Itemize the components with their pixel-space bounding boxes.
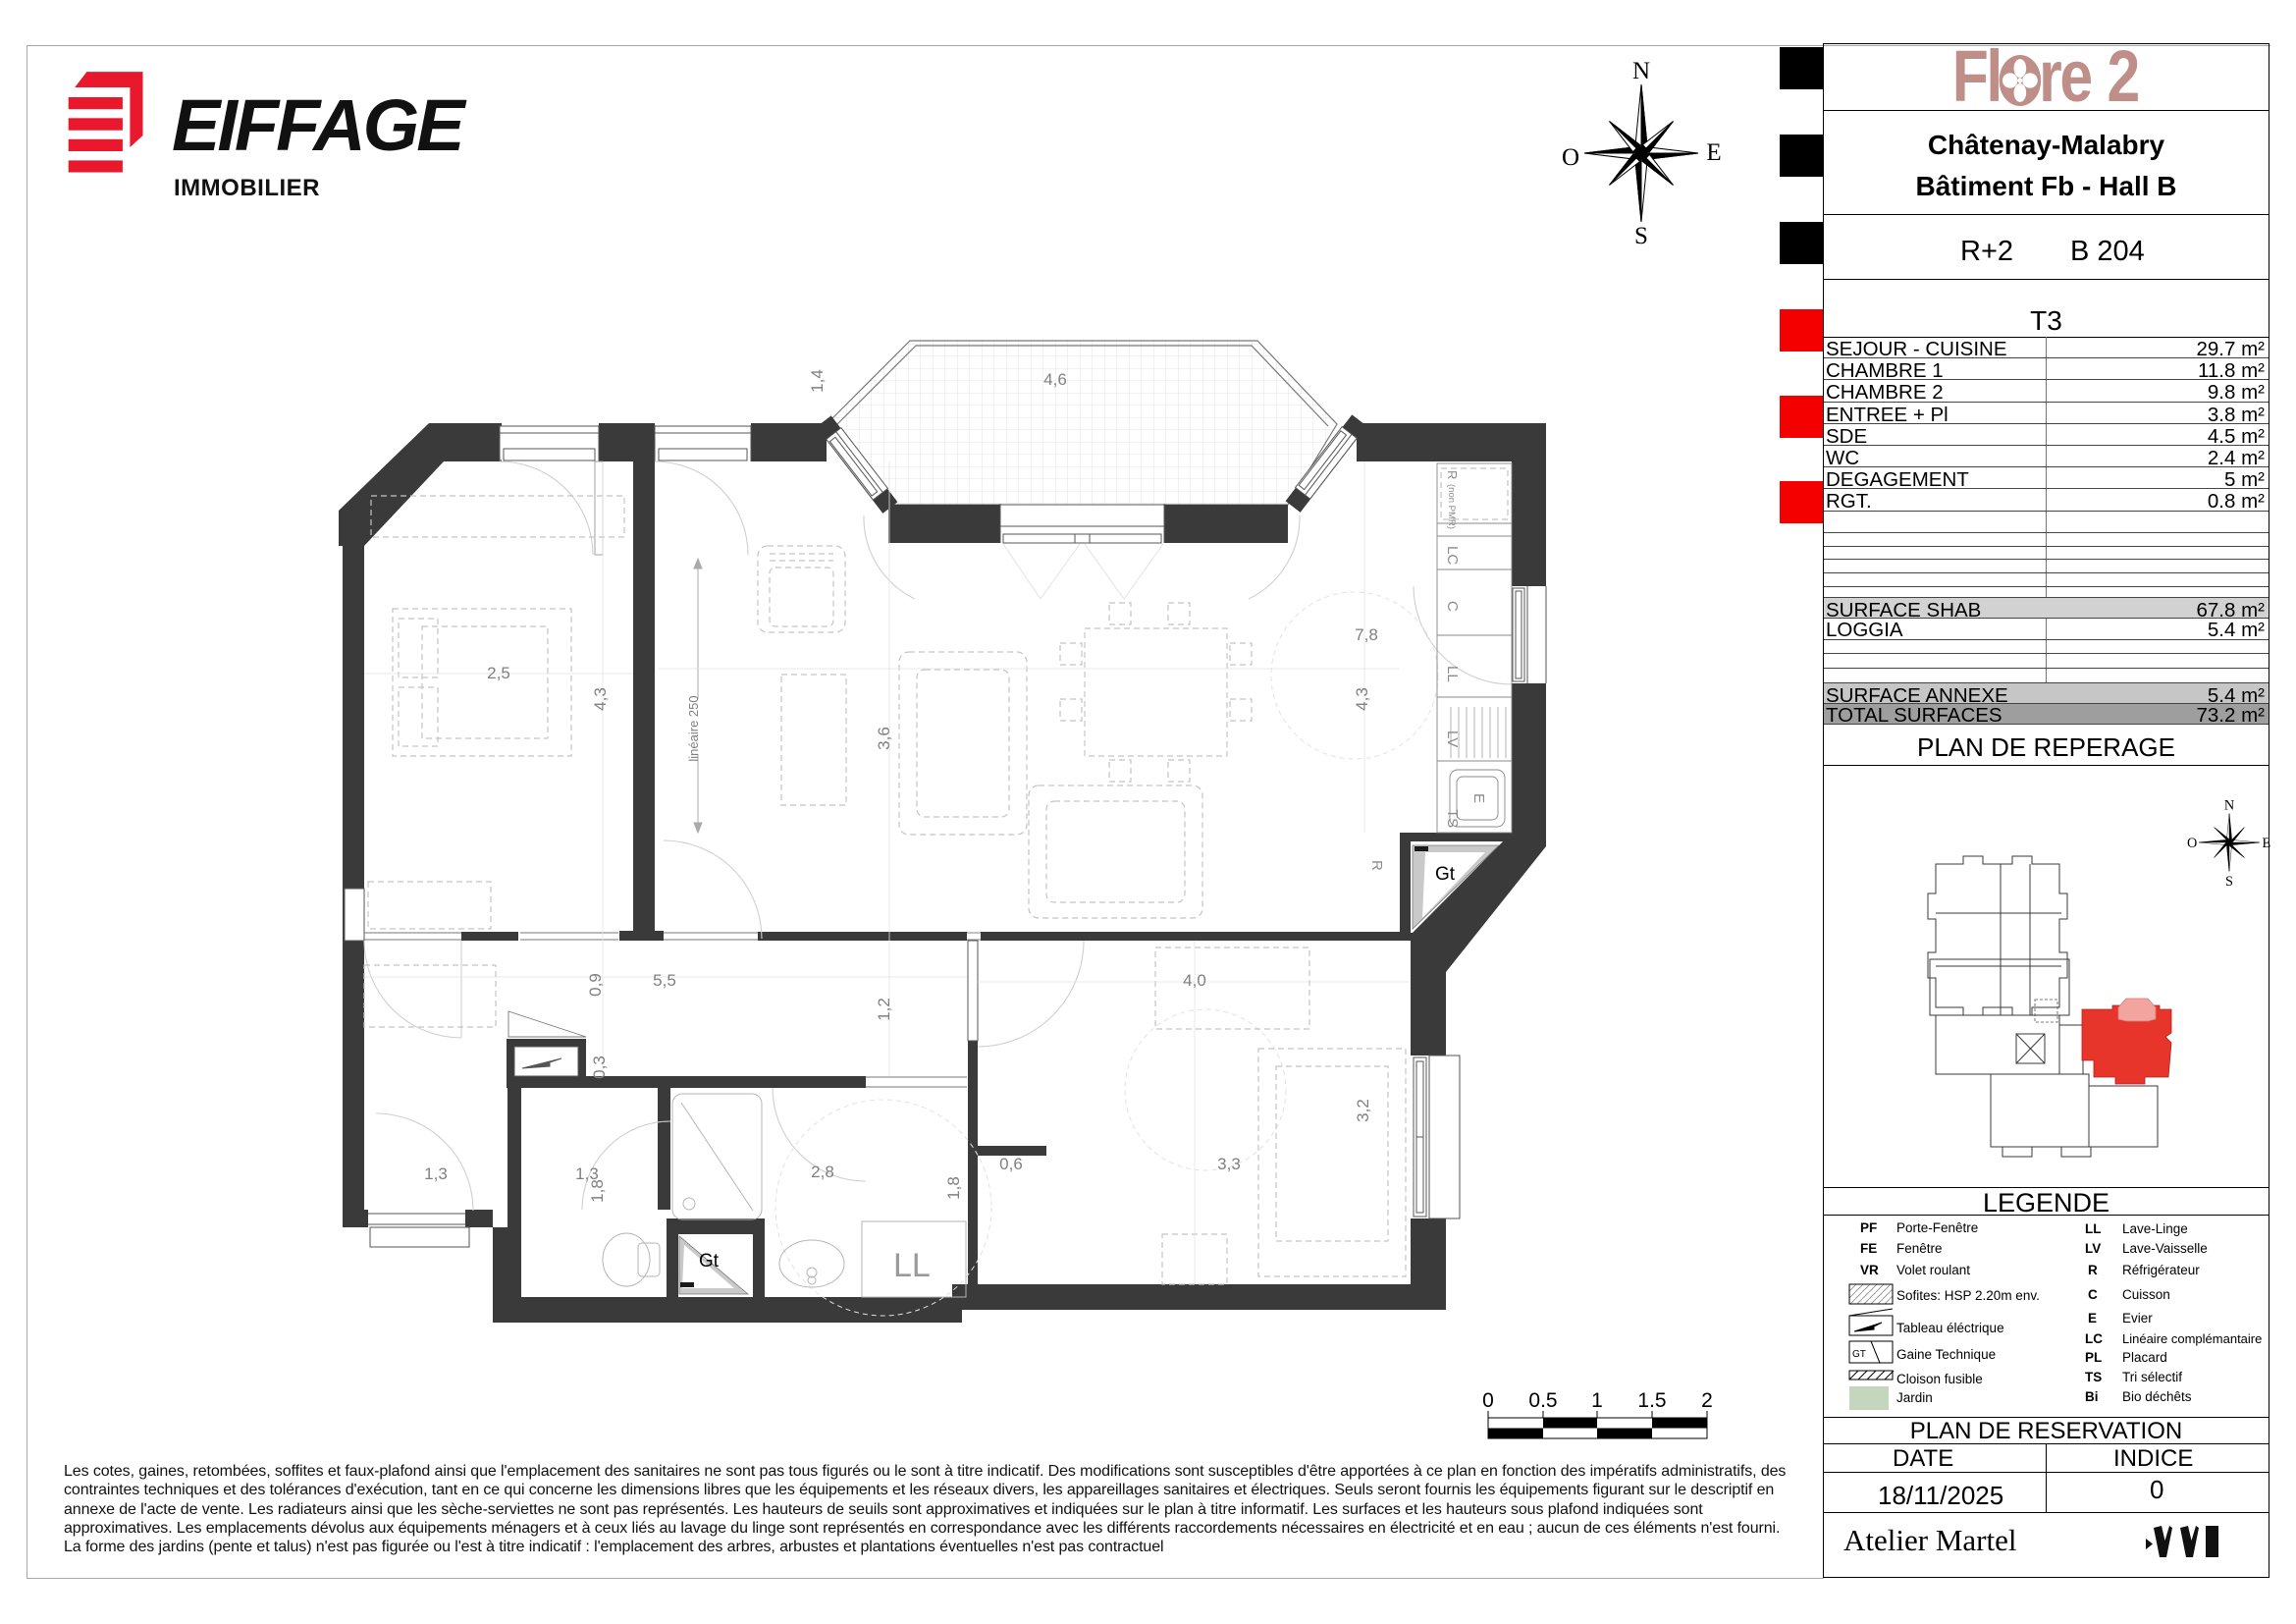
svg-text:7,8: 7,8 [1355,625,1378,644]
svg-text:O: O [1562,144,1579,171]
svg-text:N: N [1632,58,1650,84]
svg-text:LC: LC [1444,546,1461,565]
svg-text:LL: LL [893,1247,931,1284]
svg-text:(non PMR): (non PMR) [1446,484,1457,529]
svg-text:0.5: 0.5 [1528,1389,1557,1412]
svg-text:4,0: 4,0 [1183,971,1206,990]
svg-text:S: S [1634,223,1648,249]
svg-text:2,8: 2,8 [811,1163,834,1181]
svg-text:1,2: 1,2 [875,998,893,1021]
svg-text:4,3: 4,3 [591,687,610,711]
svg-text:C: C [1444,601,1461,612]
svg-text:E: E [1470,793,1487,803]
svg-text:TS: TS [1444,809,1461,828]
svg-text:3,3: 3,3 [1217,1155,1241,1173]
svg-text:LV: LV [1444,731,1461,747]
svg-text:IMMOBILIER: IMMOBILIER [174,175,320,201]
svg-text:4,3: 4,3 [1353,687,1371,711]
svg-text:4,6: 4,6 [1043,370,1067,389]
svg-text:Gt: Gt [1435,864,1456,885]
svg-text:1,8: 1,8 [588,1179,607,1203]
svg-text:R: R [1368,860,1385,871]
svg-text:1,3: 1,3 [424,1164,448,1183]
svg-text:1.5: 1.5 [1637,1389,1666,1412]
svg-text:R: R [1445,470,1460,479]
svg-text:E: E [1706,139,1721,166]
svg-text:0,3: 0,3 [590,1056,609,1079]
svg-text:1: 1 [1591,1389,1603,1412]
svg-text:1,8: 1,8 [944,1176,963,1200]
svg-text:0,9: 0,9 [586,973,605,997]
svg-text:Gt: Gt [699,1251,720,1272]
svg-text:5,5: 5,5 [653,971,676,990]
svg-text:2,5: 2,5 [487,664,510,682]
svg-text:EIFFAGE: EIFFAGE [172,84,467,166]
svg-text:linéaire 250: linéaire 250 [686,695,701,761]
svg-text:3,2: 3,2 [1354,1099,1372,1122]
svg-text:0: 0 [1482,1389,1494,1412]
svg-text:3,6: 3,6 [875,727,893,750]
svg-text:0,6: 0,6 [999,1155,1023,1173]
svg-text:LL: LL [1444,666,1461,682]
svg-text:1,4: 1,4 [808,369,827,393]
svg-text:2: 2 [1701,1389,1713,1412]
